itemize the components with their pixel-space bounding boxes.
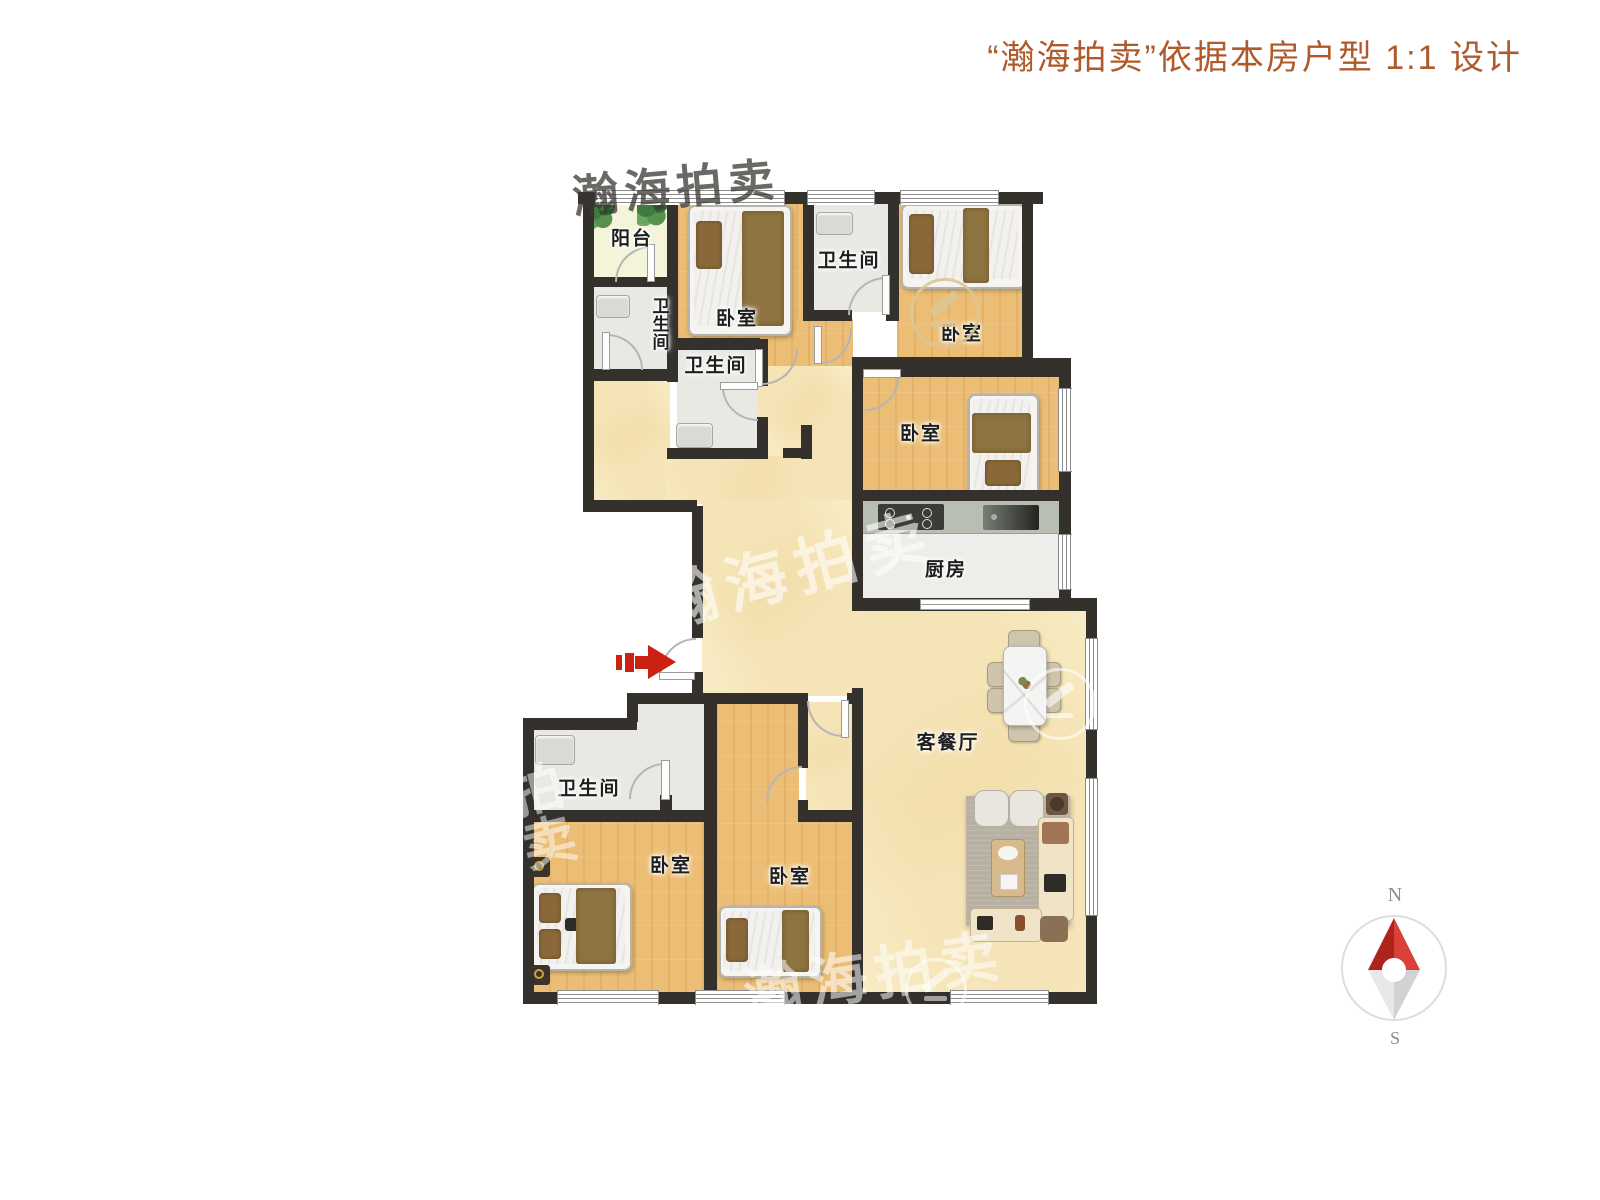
window — [807, 190, 875, 205]
room-label-bath-top: 卫生间 — [647, 297, 672, 351]
sofa-set — [964, 790, 1074, 944]
bath-sink — [676, 423, 713, 448]
door-leaf — [720, 382, 758, 390]
wall-segment — [523, 718, 534, 1004]
room-label-living-dining: 客餐厅 — [916, 728, 979, 755]
room-label-bedroom-bottom-left: 卧室 — [650, 851, 692, 878]
wall-segment — [897, 365, 1059, 377]
room-label-bedroom-top-left: 卧室 — [716, 304, 758, 331]
wall-segment — [852, 365, 863, 611]
window — [557, 990, 659, 1005]
wall-segment — [692, 506, 703, 638]
wall-segment — [704, 693, 717, 993]
window — [900, 190, 999, 205]
wall-segment — [1022, 192, 1033, 370]
window — [1085, 638, 1098, 730]
room-label-bedroom-right: 卧室 — [900, 419, 942, 446]
entry-arrow-icon — [616, 645, 678, 679]
window — [1058, 534, 1072, 590]
wall-segment — [627, 693, 808, 704]
wall-segment — [852, 490, 1059, 501]
window — [950, 990, 1049, 1005]
door-leaf — [602, 332, 610, 370]
door-leaf — [863, 369, 901, 378]
room-label-bedroom-bottom-mid: 卧室 — [769, 862, 811, 889]
stove — [878, 504, 944, 530]
wall-segment — [583, 369, 678, 381]
sliding-door — [920, 599, 1030, 610]
side-table — [1046, 793, 1068, 815]
wall-segment — [803, 192, 814, 321]
hall-floor-entry — [702, 500, 854, 696]
window — [1085, 778, 1098, 916]
wall-segment — [583, 500, 697, 512]
coffee-table — [991, 839, 1025, 897]
room-label-kitchen: 厨房 — [925, 555, 967, 582]
wall-segment — [523, 718, 637, 730]
bedroom-bottom-mid-strip-floor — [716, 702, 799, 824]
wall-segment — [523, 810, 715, 822]
wall-segment — [667, 192, 678, 382]
wall-segment — [583, 192, 594, 512]
wall-segment — [783, 448, 812, 458]
room-label-bath-lower: 卫生间 — [557, 774, 620, 801]
kitchen-counter — [861, 501, 1061, 534]
bath-sink — [596, 295, 630, 318]
sofa — [1038, 817, 1074, 921]
room-label-bath-mid-top: 卫生间 — [817, 246, 880, 273]
wall-segment — [852, 688, 863, 994]
kitchen-sink — [983, 505, 1039, 530]
door-leaf — [882, 275, 890, 315]
window — [695, 990, 785, 1005]
wall-segment — [672, 338, 760, 349]
dining-table — [1003, 646, 1047, 726]
double-bed — [532, 883, 632, 971]
window — [595, 190, 785, 205]
bed — [968, 394, 1039, 499]
washing-machine — [535, 735, 575, 765]
bath-sink — [816, 212, 853, 235]
room-label-bath-inner: 卫生间 — [684, 351, 747, 378]
bed — [719, 906, 822, 978]
wall-segment — [803, 310, 852, 321]
page-title: “瀚海拍卖”依据本房户型 1:1 设计 — [987, 30, 1522, 79]
sofa-bench — [970, 908, 1042, 942]
door-leaf — [814, 326, 822, 364]
hall-floor-a — [592, 379, 670, 503]
door-leaf — [661, 760, 670, 800]
compass: N S — [1330, 878, 1460, 1058]
wall-segment — [667, 448, 768, 459]
dining-set — [985, 630, 1065, 742]
bed — [901, 204, 1026, 289]
wall-segment — [798, 703, 808, 768]
door-leaf — [841, 700, 849, 738]
window — [1058, 388, 1072, 472]
wall-segment — [757, 417, 768, 459]
room-label-bedroom-top-right: 卧室 — [941, 319, 983, 346]
armchair — [974, 790, 1009, 827]
room-label-balcony: 阳台 — [611, 224, 653, 251]
corner-stool — [1040, 916, 1068, 942]
compass-south-label: S — [1330, 1028, 1460, 1049]
